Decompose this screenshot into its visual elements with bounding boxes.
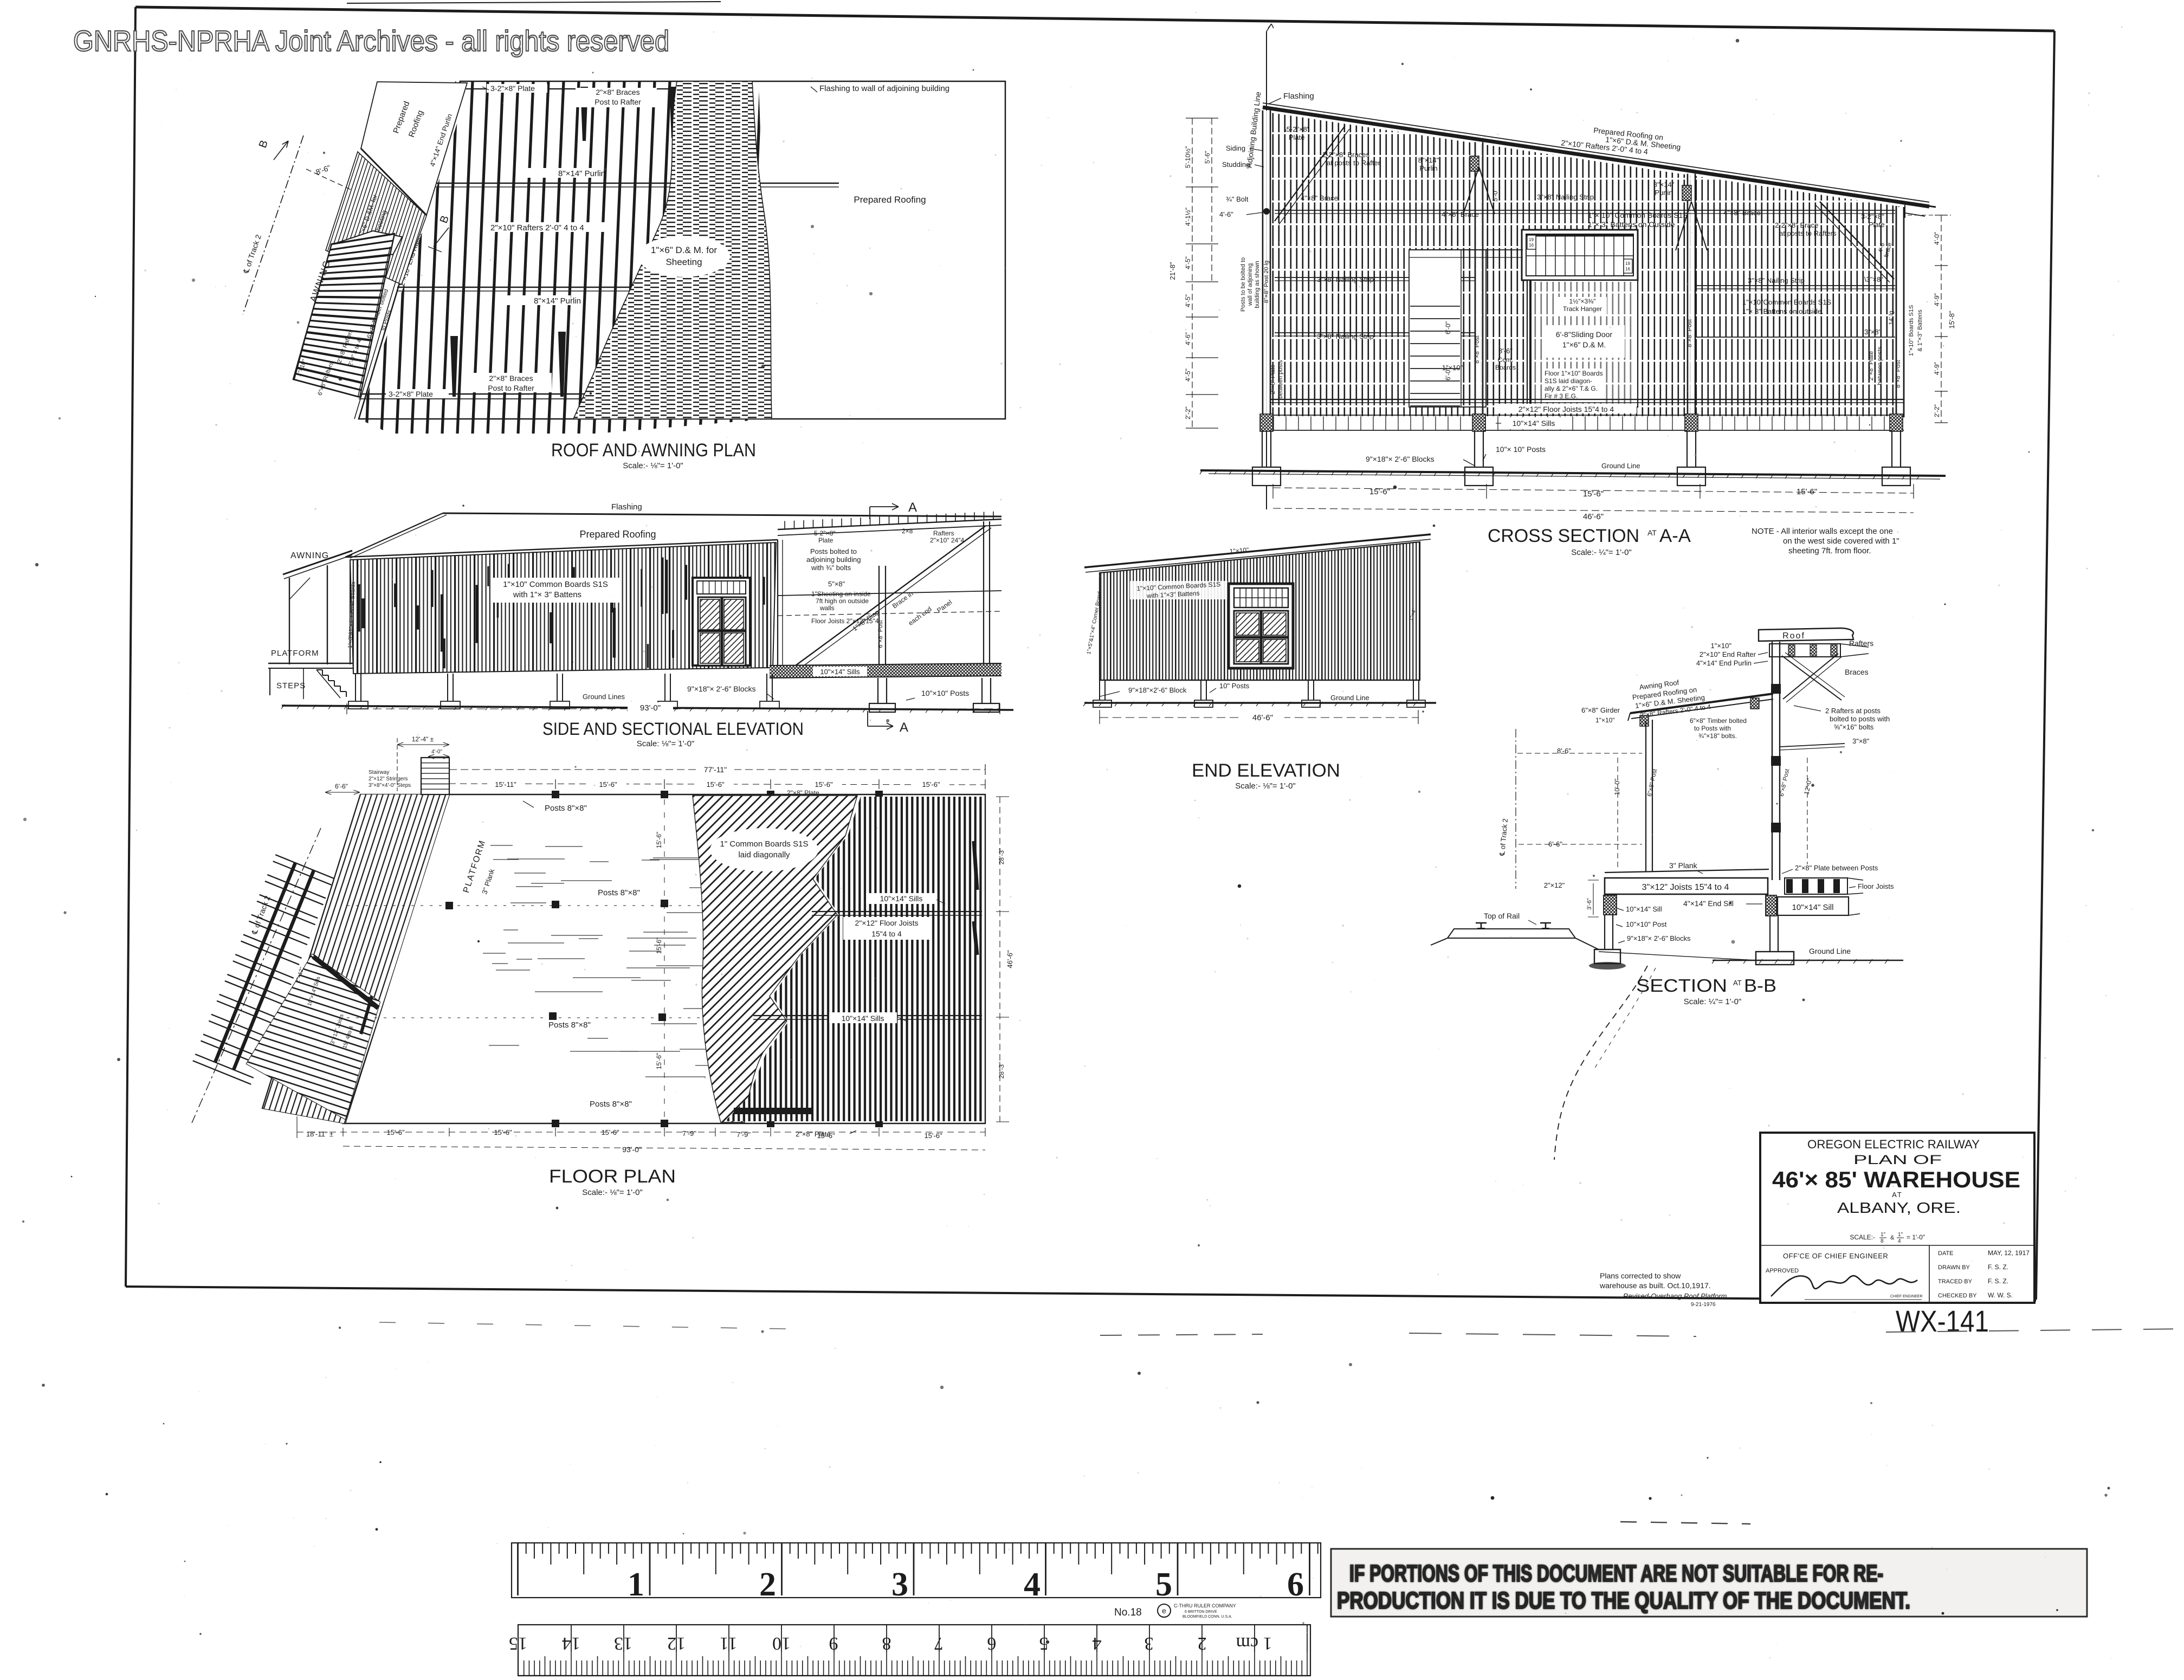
svg-text:2"×8" Braces: 2"×8" Braces xyxy=(489,374,533,383)
svg-text:AT: AT xyxy=(1733,979,1742,987)
svg-text:14: 14 xyxy=(562,1633,580,1653)
svg-text:Prepared Roofing: Prepared Roofing xyxy=(579,529,656,540)
svg-text:15'-6": 15'-6" xyxy=(1583,489,1604,499)
svg-text:2"×8" Plate: 2"×8" Plate xyxy=(1270,365,1276,395)
svg-text:Scale: ⅛"= 1'-0": Scale: ⅛"= 1'-0" xyxy=(637,739,695,748)
svg-text:Posts 8"×8": Posts 8"×8" xyxy=(548,1020,591,1030)
svg-text:5"×8": 5"×8" xyxy=(828,580,845,588)
svg-text:15'-8": 15'-8" xyxy=(1948,311,1956,329)
svg-text:TRACED BY: TRACED BY xyxy=(1938,1278,1973,1285)
svg-text:3"×8": 3"×8" xyxy=(1852,737,1870,745)
svg-text:10"×14" Sills: 10"×14" Sills xyxy=(820,668,860,676)
svg-text:1"×10": 1"×10" xyxy=(1595,716,1615,724)
svg-text:A-A: A-A xyxy=(1659,526,1691,546)
svg-text:46'-6": 46'-6" xyxy=(1583,512,1604,521)
svg-text:2"×8" Braces: 2"×8" Braces xyxy=(596,88,639,96)
svg-text:28'-3": 28'-3" xyxy=(998,848,1005,865)
svg-text:5'-6": 5'-6" xyxy=(1204,151,1211,164)
svg-text:F. S. Z.: F. S. Z. xyxy=(1988,1277,2008,1285)
svg-text:Floor Joists: Floor Joists xyxy=(1858,882,1894,890)
svg-text:2"×8" Plate: 2"×8" Plate xyxy=(787,789,819,797)
svg-text:at posts to Rafter: at posts to Rafter xyxy=(1327,159,1381,167)
svg-text:Post to Rafter: Post to Rafter xyxy=(595,98,641,106)
svg-text:sheeting 7ft. from floor.: sheeting 7ft. from floor. xyxy=(1788,546,1871,555)
svg-text:6'-8"Sliding Door: 6'-8"Sliding Door xyxy=(1556,330,1612,339)
svg-text:8"×8" Post: 8"×8" Post xyxy=(1474,335,1481,364)
svg-text:4'-6": 4'-6" xyxy=(1184,332,1192,345)
svg-text:7'-9": 7'-9" xyxy=(736,1130,751,1139)
svg-text:3: 3 xyxy=(891,1566,908,1603)
svg-text:STEPS: STEPS xyxy=(276,681,306,690)
svg-text:10"×14" Sill: 10"×14" Sill xyxy=(1792,903,1834,912)
svg-text:1"×10" Boards S1S: 1"×10" Boards S1S xyxy=(1908,305,1915,356)
svg-text:1½"×3⅜": 1½"×3⅜" xyxy=(1569,298,1596,305)
svg-text:Scale:- ¼"= 1'-0": Scale:- ¼"= 1'-0" xyxy=(1571,548,1631,557)
svg-text:CHECKED BY: CHECKED BY xyxy=(1938,1293,1977,1299)
svg-text:10"×10" Posts: 10"×10" Posts xyxy=(921,689,969,697)
svg-text:Boards: Boards xyxy=(1495,364,1516,371)
svg-text:15'-6": 15'-6" xyxy=(655,1053,663,1070)
svg-text:12'-4" ±: 12'-4" ± xyxy=(412,735,434,743)
svg-text:IF PORTIONS OF THIS DOCUMENT A: IF PORTIONS OF THIS DOCUMENT ARE NOT SUI… xyxy=(1349,1560,1883,1587)
svg-text:93'-0": 93'-0" xyxy=(622,1145,642,1154)
svg-text:C-THRU RULER COMPANY: C-THRU RULER COMPANY xyxy=(1174,1603,1236,1608)
svg-text:2'-2": 2'-2" xyxy=(1184,406,1192,419)
svg-text:to Posts with: to Posts with xyxy=(1694,725,1731,732)
svg-text:10" Posts: 10" Posts xyxy=(1219,682,1250,690)
svg-text:2"×10" Rafters 2'-0" 4 to 4: 2"×10" Rafters 2'-0" 4 to 4 xyxy=(490,223,584,232)
svg-text:15'-6": 15'-6" xyxy=(706,780,725,789)
svg-text:F. S. Z.: F. S. Z. xyxy=(1988,1263,2008,1271)
svg-text:4'-5": 4'-5" xyxy=(1184,369,1192,382)
svg-text:21'-8": 21'-8" xyxy=(1168,262,1177,280)
svg-text:8: 8 xyxy=(1881,1238,1884,1244)
svg-text:Track Hanger: Track Hanger xyxy=(1563,305,1602,313)
svg-text:AWNING: AWNING xyxy=(290,551,329,560)
svg-text:with 1"× 3" Battens: with 1"× 3" Battens xyxy=(513,590,581,599)
svg-text:6"×8" Timber bolted: 6"×8" Timber bolted xyxy=(1690,717,1747,725)
svg-text:3"×8": 3"×8" xyxy=(1864,328,1882,336)
svg-text:15'-6": 15'-6" xyxy=(494,1128,512,1136)
svg-text:AT: AT xyxy=(1647,528,1657,537)
svg-text:bolted to posts with: bolted to posts with xyxy=(1830,715,1890,723)
svg-text:3-2"×8": 3-2"×8" xyxy=(1861,212,1884,221)
svg-text:3"×8" Nailing Strip: 3"×8" Nailing Strip xyxy=(1748,276,1805,285)
svg-text:1": 1" xyxy=(1881,1232,1886,1238)
svg-text:15'-6": 15'-6" xyxy=(655,832,663,849)
svg-text:2"×10" End Rafter: 2"×10" End Rafter xyxy=(1700,650,1756,658)
svg-text:Flashing: Flashing xyxy=(1283,92,1314,101)
svg-text:15'-6": 15'-6" xyxy=(599,780,617,789)
svg-text:6"×8" Girder: 6"×8" Girder xyxy=(1581,706,1620,714)
svg-text:OFF'CE OF CHIEF ENGINEER: OFF'CE OF CHIEF ENGINEER xyxy=(1783,1252,1888,1260)
svg-text:Rafters: Rafters xyxy=(1849,639,1873,648)
svg-text:1 cm: 1 cm xyxy=(1236,1633,1272,1653)
svg-text:3"×8" Nailing Strip: 3"×8" Nailing Strip xyxy=(1317,332,1374,340)
svg-text:16: 16 xyxy=(1625,267,1630,272)
svg-text:15'-6": 15'-6" xyxy=(815,780,833,789)
svg-text:13: 13 xyxy=(614,1633,632,1653)
svg-text:Posts to be bolted to: Posts to be bolted to xyxy=(1240,257,1246,312)
svg-text:3-2"×8" Plate: 3-2"×8" Plate xyxy=(490,84,535,93)
svg-text:Posts 8"×8": Posts 8"×8" xyxy=(598,888,640,897)
svg-text:Floor 1"×10" Boards: Floor 1"×10" Boards xyxy=(1545,370,1603,377)
svg-text:1"×10": 1"×10" xyxy=(1442,364,1463,372)
svg-text:15'-6": 15'-6" xyxy=(1797,487,1817,496)
svg-text:1"×10"Common Boards S1S: 1"×10"Common Boards S1S xyxy=(1742,298,1832,306)
svg-text:= 1'-0": = 1'-0" xyxy=(1907,1233,1925,1241)
svg-text:8: 8 xyxy=(882,1633,891,1653)
svg-text:8"×14": 8"×14" xyxy=(1653,180,1675,189)
svg-text:2"×8" Plate between Posts: 2"×8" Plate between Posts xyxy=(1795,864,1878,872)
svg-text:\3"×8": \3"×8" xyxy=(1864,275,1883,283)
svg-text:Top of Rail: Top of Rail xyxy=(1484,912,1520,920)
svg-text:1": 1" xyxy=(1898,1232,1903,1238)
svg-text:walls: walls xyxy=(819,604,835,612)
svg-text:Revised-Overhang Roof Platform: Revised-Overhang Roof Platform xyxy=(1623,1292,1727,1300)
svg-text:8'-6": 8'-6" xyxy=(1557,747,1571,755)
svg-text:4'-9": 4'-9" xyxy=(1933,362,1941,375)
svg-text:15'-11": 15'-11" xyxy=(495,780,516,789)
svg-text:GNRHS-NPRHA Joint Archives - a: GNRHS-NPRHA Joint Archives - all rights … xyxy=(73,25,669,57)
svg-text:Posts 8"×8": Posts 8"×8" xyxy=(545,804,587,813)
svg-text:3-2"×8" Plate: 3-2"×8" Plate xyxy=(389,390,433,398)
svg-text:& 1"×3" Battens: & 1"×3" Battens xyxy=(1917,309,1923,352)
svg-text:Roof: Roof xyxy=(1782,631,1805,641)
svg-text:Purlin: Purlin xyxy=(1419,164,1437,172)
svg-text:11: 11 xyxy=(720,1633,738,1653)
svg-text:2"×12": 2"×12" xyxy=(1544,881,1565,889)
svg-text:MAY, 12, 1917: MAY, 12, 1917 xyxy=(1988,1249,2030,1257)
svg-text:6: 6 xyxy=(987,1633,997,1653)
svg-text:DATE: DATE xyxy=(1938,1250,1954,1257)
svg-text:between posts: between posts xyxy=(1877,346,1883,385)
svg-text:1"× 3" Battens on outside.: 1"× 3" Battens on outside. xyxy=(1742,307,1824,315)
svg-text:Flashing: Flashing xyxy=(611,502,642,512)
svg-text:Com.: Com. xyxy=(1498,356,1514,364)
svg-text:laid diagonally: laid diagonally xyxy=(738,850,790,860)
svg-text:4'-5": 4'-5" xyxy=(1184,256,1192,269)
svg-text:OREGON ELECTRIC RAILWAY: OREGON ELECTRIC RAILWAY xyxy=(1807,1138,1980,1151)
svg-text:Prepared Roofing: Prepared Roofing xyxy=(854,195,926,205)
svg-text:6: 6 xyxy=(1287,1566,1304,1603)
svg-text:between posts: between posts xyxy=(1277,360,1284,398)
svg-text:4: 4 xyxy=(1093,1633,1102,1653)
svg-text:15'-6": 15'-6" xyxy=(1369,487,1390,496)
svg-text:2-2"×8" Braces: 2-2"×8" Braces xyxy=(1322,151,1369,159)
svg-text:5'-10½": 5'-10½" xyxy=(1184,146,1192,169)
svg-text:1"×6" D.& M. for: 1"×6" D.& M. for xyxy=(651,245,717,255)
svg-text:3"×8" Nailing Strip: 3"×8" Nailing Strip xyxy=(1317,275,1374,283)
svg-text:END ELEVATION: END ELEVATION xyxy=(1192,760,1340,781)
svg-text:93'-0": 93'-0" xyxy=(640,703,661,713)
svg-text:A: A xyxy=(900,720,908,735)
svg-text:PLAN OF: PLAN OF xyxy=(1853,1153,1942,1167)
svg-text:Scale:- ⅛"= 1'-0": Scale:- ⅛"= 1'-0" xyxy=(623,461,683,470)
svg-text:FLOOR PLAN: FLOOR PLAN xyxy=(549,1166,676,1187)
svg-text:Studding: Studding xyxy=(1222,160,1250,169)
svg-text:5: 5 xyxy=(1155,1566,1172,1603)
svg-text:16: 16 xyxy=(1529,243,1534,248)
svg-text:10"×14" Sill: 10"×14" Sill xyxy=(1626,905,1662,913)
svg-text:2"×10" 24"4: 2"×10" 24"4 xyxy=(930,537,964,544)
svg-text:&: & xyxy=(1890,1235,1895,1241)
svg-text:Stairway: Stairway xyxy=(369,770,389,776)
svg-text:S1S laid diagon-: S1S laid diagon- xyxy=(1545,377,1592,385)
svg-text:warehouse as built. Oct.10,19: warehouse as built. Oct.10,1917. xyxy=(1599,1281,1711,1290)
svg-text:Plate: Plate xyxy=(818,537,833,544)
svg-text:10"×14" Sills: 10"×14" Sills xyxy=(1513,419,1555,428)
svg-text:15'-6": 15'-6" xyxy=(601,1128,619,1136)
svg-text:¾"×18" bolts.: ¾"×18" bolts. xyxy=(1698,732,1737,740)
svg-text:BLOOMFIELD CONN. U.S.A.: BLOOMFIELD CONN. U.S.A. xyxy=(1183,1615,1232,1619)
svg-text:Post to Rafter: Post to Rafter xyxy=(488,384,534,392)
svg-text:10"×14" Sills: 10"×14" Sills xyxy=(842,1014,884,1023)
svg-text:wall of adjoining: wall of adjoining xyxy=(1247,263,1253,306)
svg-text:8"×14" Purlin: 8"×14" Purlin xyxy=(534,296,581,306)
svg-text:4: 4 xyxy=(1898,1238,1901,1244)
svg-text:1"×10": 1"×10" xyxy=(1710,642,1731,650)
svg-text:6"×8" Post: 6"×8" Post xyxy=(877,620,884,648)
svg-text:1: 1 xyxy=(628,1566,644,1603)
svg-text:Ground Line: Ground Line xyxy=(1601,462,1640,470)
svg-text:NOTE - All interior walls exc: NOTE - All interior walls except the one xyxy=(1752,527,1893,536)
svg-text:8"×8" Post: 8"×8" Post xyxy=(1895,360,1902,388)
svg-text:7: 7 xyxy=(934,1633,944,1653)
svg-text:15'-6": 15'-6" xyxy=(924,1132,942,1140)
svg-text:6'-0": 6'-0" xyxy=(1444,321,1452,334)
svg-text:Ground Lines: Ground Lines xyxy=(583,693,625,701)
svg-text:1"× 10" Common Boards S1S: 1"× 10" Common Boards S1S xyxy=(1588,211,1688,219)
svg-text:15: 15 xyxy=(509,1633,527,1653)
svg-text:10"× 10" Posts: 10"× 10" Posts xyxy=(1496,445,1546,454)
svg-text:Scale:- ⅛"= 1'-0": Scale:- ⅛"= 1'-0" xyxy=(582,1188,642,1197)
svg-text:with ¾" bolts: with ¾" bolts xyxy=(811,564,851,572)
svg-text:4'-0": 4'-0" xyxy=(431,749,442,755)
svg-text:Braces: Braces xyxy=(1845,668,1869,676)
svg-text:46'-6": 46'-6" xyxy=(1006,950,1014,968)
svg-text:SIDE AND SECTIONAL ELEVATION: SIDE AND SECTIONAL ELEVATION xyxy=(542,719,804,739)
svg-text:2'-2": 2'-2" xyxy=(1933,404,1941,417)
svg-text:⅝"×16" bolts: ⅝"×16" bolts xyxy=(1834,723,1874,731)
svg-text:10"×10" Post: 10"×10" Post xyxy=(1626,920,1667,928)
svg-text:\5-2"×8": \5-2"×8" xyxy=(1284,125,1310,133)
svg-text:5-2"×8": 5-2"×8" xyxy=(814,529,836,537)
svg-text:18'-11" ±: 18'-11" ± xyxy=(306,1130,333,1138)
svg-text:9"×18"×2'-6" Block: 9"×18"×2'-6" Block xyxy=(1128,686,1187,694)
svg-text:3"×12" Joists 15"4 to 4: 3"×12" Joists 15"4 to 4 xyxy=(1642,883,1729,892)
svg-text:8'-6": 8'-6" xyxy=(1498,347,1513,355)
svg-text:9"×18"× 2'-6" Blocks: 9"×18"× 2'-6" Blocks xyxy=(687,684,756,693)
svg-text:Rafters: Rafters xyxy=(933,529,954,537)
svg-text:B-B: B-B xyxy=(1744,975,1776,996)
svg-text:7'-9": 7'-9" xyxy=(682,1129,696,1138)
svg-text:Flashing to wall of adjoining: Flashing to wall of adjoining building xyxy=(819,84,949,93)
svg-text:15'-6": 15'-6" xyxy=(386,1128,405,1136)
svg-text:A: A xyxy=(908,500,917,515)
svg-text:77'-11": 77'-11" xyxy=(704,765,727,774)
svg-text:WX-141: WX-141 xyxy=(1896,1304,1989,1338)
svg-text:4"×8" Brace: 4"×8" Brace xyxy=(1301,194,1338,202)
svg-text:4"×8" Brace: 4"×8" Brace xyxy=(1442,210,1479,218)
svg-text:46'-6": 46'-6" xyxy=(1252,713,1273,722)
svg-text:CHIEF ENGINEER: CHIEF ENGINEER xyxy=(1890,1295,1923,1298)
svg-text:8"×14": 8"×14" xyxy=(1418,156,1439,164)
svg-text:2: 2 xyxy=(759,1566,776,1603)
svg-text:2 Rafters at posts: 2 Rafters at posts xyxy=(1825,707,1881,715)
svg-text:10'-0": 10'-0" xyxy=(1613,779,1621,796)
svg-text:4"×14" End Purlin: 4"×14" End Purlin xyxy=(1696,659,1752,667)
svg-text:2: 2 xyxy=(1198,1633,1207,1653)
svg-text:ally & 2"×6" T.& G.: ally & 2"×6" T.& G. xyxy=(1545,385,1598,392)
svg-text:SCALE:-: SCALE:- xyxy=(1850,1233,1875,1241)
svg-text:Posts 8"×8": Posts 8"×8" xyxy=(590,1100,632,1109)
svg-text:building as shown: building as shown xyxy=(1254,261,1261,308)
svg-text:¾" Bolt: ¾" Bolt xyxy=(1226,195,1249,203)
svg-text:3"×8" Nailing Strip: 3"×8" Nailing Strip xyxy=(1537,193,1594,201)
svg-text:ALBANY, ORE.: ALBANY, ORE. xyxy=(1837,1199,1961,1216)
svg-text:4'-6": 4'-6" xyxy=(1219,210,1233,218)
svg-text:AT: AT xyxy=(1892,1191,1903,1199)
svg-text:9-21-1976: 9-21-1976 xyxy=(1691,1302,1716,1308)
svg-text:2"×12" Floor Joists 15"4 to 4: 2"×12" Floor Joists 15"4 to 4 xyxy=(1519,405,1614,413)
svg-text:10: 10 xyxy=(772,1633,791,1653)
svg-text:14' lg.: 14' lg. xyxy=(1888,309,1895,325)
svg-text:15'-6": 15'-6" xyxy=(817,1132,835,1140)
svg-text:DRAWN BY: DRAWN BY xyxy=(1938,1264,1970,1271)
svg-text:4"×8" Brace: 4"×8" Brace xyxy=(1723,209,1761,217)
svg-text:Sheeting: Sheeting xyxy=(665,257,702,267)
svg-text:8"×14" Purlin: 8"×14" Purlin xyxy=(558,169,605,178)
svg-text:2-2"×8" Brace: 2-2"×8" Brace xyxy=(1775,221,1818,229)
svg-text:3'-6": 3'-6" xyxy=(1586,898,1593,910)
svg-text:46'× 85' WAREHOUSE: 46'× 85' WAREHOUSE xyxy=(1772,1167,2020,1192)
svg-text:3"×8"×4'-0" Steps: 3"×8"×4'-0" Steps xyxy=(369,783,411,789)
svg-text:Plate: Plate xyxy=(1869,221,1885,229)
svg-text:1"×6" D.& M.: 1"×6" D.& M. xyxy=(1562,340,1606,349)
svg-text:19: 19 xyxy=(1625,261,1630,266)
svg-text:No.18: No.18 xyxy=(1114,1607,1142,1618)
svg-text:19: 19 xyxy=(1529,237,1534,242)
svg-text:Posts bolted to: Posts bolted to xyxy=(810,547,857,555)
svg-text:Ground Line: Ground Line xyxy=(1809,947,1851,955)
svg-text:4'-0": 4'-0" xyxy=(1933,232,1941,245)
svg-text:9"×18"× 2'-6" Blocks: 9"×18"× 2'-6" Blocks xyxy=(1366,455,1435,463)
svg-text:2"×12" Stringers: 2"×12" Stringers xyxy=(369,776,408,782)
svg-text:4"×14" End Sill: 4"×14" End Sill xyxy=(1683,899,1734,908)
svg-text:adjoining building: adjoining building xyxy=(806,555,861,564)
svg-text:4'-9": 4'-9" xyxy=(1933,293,1941,306)
svg-text:3: 3 xyxy=(1145,1633,1154,1653)
svg-text:6'-6": 6'-6" xyxy=(335,783,348,790)
svg-text:e: e xyxy=(1162,1606,1166,1615)
svg-text:Plate: Plate xyxy=(1289,133,1305,141)
svg-text:Plans corrected to show: Plans corrected to show xyxy=(1600,1271,1681,1280)
svg-text:W. W. S.: W. W. S. xyxy=(1988,1291,2013,1299)
svg-text:8"×8" Post: 8"×8" Post xyxy=(1687,319,1693,347)
svg-text:Scale: ¼"= 1'-0": Scale: ¼"= 1'-0" xyxy=(1684,997,1742,1006)
svg-text:9: 9 xyxy=(829,1633,838,1653)
svg-text:4'-5": 4'-5" xyxy=(1184,294,1192,307)
svg-text:APPROVED: APPROVED xyxy=(1766,1268,1799,1274)
svg-text:Ground Line: Ground Line xyxy=(1330,694,1369,702)
svg-text:1"Sheeting on inside: 1"Sheeting on inside xyxy=(811,590,871,598)
svg-text:on the west side covered with: on the west side covered with 1" xyxy=(1783,537,1899,546)
svg-text:2"×8" Plate: 2"×8" Plate xyxy=(1868,351,1875,381)
svg-text:Purlin: Purlin xyxy=(1655,189,1672,197)
svg-text:7ft high on outside: 7ft high on outside xyxy=(816,597,869,605)
svg-text:3" Plank: 3" Plank xyxy=(1669,861,1698,870)
svg-text:Siding: Siding xyxy=(1226,144,1245,152)
svg-text:15'-6": 15'-6" xyxy=(922,780,940,789)
svg-text:15"4 to 4: 15"4 to 4 xyxy=(871,929,902,938)
svg-text:15'-6": 15'-6" xyxy=(655,938,663,954)
svg-text:6 BRITTON DRIVE: 6 BRITTON DRIVE xyxy=(1185,1610,1217,1614)
svg-text:4'-1½": 4'-1½" xyxy=(1184,208,1192,226)
svg-text:9"×18"× 2'-6" Blocks: 9"×18"× 2'-6" Blocks xyxy=(1627,934,1691,942)
svg-text:1"× 3" Battens on Outside: 1"× 3" Battens on Outside xyxy=(1588,220,1675,229)
svg-text:28'-3": 28'-3" xyxy=(998,1062,1005,1079)
svg-text:1"×10" Common Boards S1S: 1"×10" Common Boards S1S xyxy=(503,580,608,589)
svg-text:at posts to Rafters: at posts to Rafters xyxy=(1779,229,1837,237)
svg-text:PLATFORM: PLATFORM xyxy=(271,649,319,658)
svg-text:12: 12 xyxy=(667,1633,686,1653)
svg-text:10"×14" Sills: 10"×14" Sills xyxy=(880,894,923,903)
svg-text:CROSS SECTION: CROSS SECTION xyxy=(1488,526,1639,546)
svg-text:8"×8" Post 20 lg: 8"×8" Post 20 lg xyxy=(1263,261,1270,303)
svg-text:2"×12" Floor Joists: 2"×12" Floor Joists xyxy=(855,919,919,927)
svg-text:Scale:- ⅛"= 1'-0": Scale:- ⅛"= 1'-0" xyxy=(1235,781,1295,791)
svg-text:SECTION: SECTION xyxy=(1636,975,1727,996)
svg-text:PRODUCTION IT IS DUE TO THE QU: PRODUCTION IT IS DUE TO THE QUALITY OF T… xyxy=(1337,1587,1910,1614)
svg-text:2×8: 2×8 xyxy=(902,527,913,535)
svg-text:4: 4 xyxy=(1024,1566,1041,1603)
svg-text:5'-0": 5'-0" xyxy=(1491,189,1499,202)
svg-text:ROOF AND AWNING PLAN: ROOF AND AWNING PLAN xyxy=(551,440,756,461)
